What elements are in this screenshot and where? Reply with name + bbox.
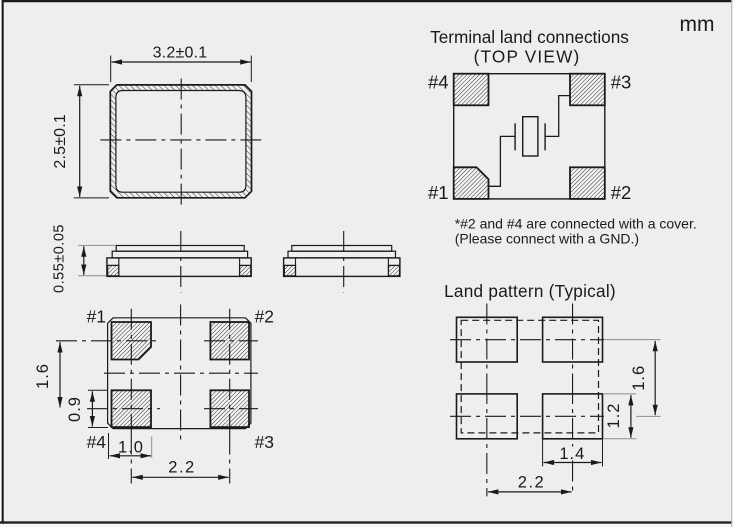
svg-text:1.2: 1.2 (605, 403, 623, 429)
svg-text:Terminal land connections: Terminal land connections (430, 27, 629, 47)
svg-text:1.6: 1.6 (34, 363, 52, 389)
svg-text:0.9: 0.9 (66, 396, 84, 422)
svg-text:#4: #4 (87, 432, 107, 452)
svg-text:3.2±0.1: 3.2±0.1 (153, 45, 208, 62)
svg-text:0.55±0.05: 0.55±0.05 (51, 224, 67, 293)
svg-text:#2: #2 (255, 306, 274, 326)
svg-text:1.4: 1.4 (559, 445, 585, 463)
svg-text:Land pattern (Typical): Land pattern (Typical) (444, 281, 616, 301)
svg-text:2.2: 2.2 (168, 458, 195, 476)
svg-text:(TOP VIEW): (TOP VIEW) (474, 47, 581, 67)
svg-text:2.5±0.1: 2.5±0.1 (52, 114, 69, 169)
svg-text:*#2 and #4 are connected with: *#2 and #4 are connected with a cover. (455, 216, 697, 232)
svg-text:mm: mm (680, 13, 715, 36)
svg-text:2.2: 2.2 (518, 474, 545, 492)
svg-text:#3: #3 (255, 432, 274, 452)
svg-text:#3: #3 (611, 71, 632, 92)
svg-text:#1: #1 (87, 306, 106, 326)
svg-text:#2: #2 (611, 182, 632, 203)
svg-text:1.6: 1.6 (630, 365, 648, 391)
svg-text:#4: #4 (428, 71, 449, 92)
svg-text:#1: #1 (428, 182, 449, 203)
svg-text:(Please connect with a GND.): (Please connect with a GND.) (455, 230, 639, 246)
